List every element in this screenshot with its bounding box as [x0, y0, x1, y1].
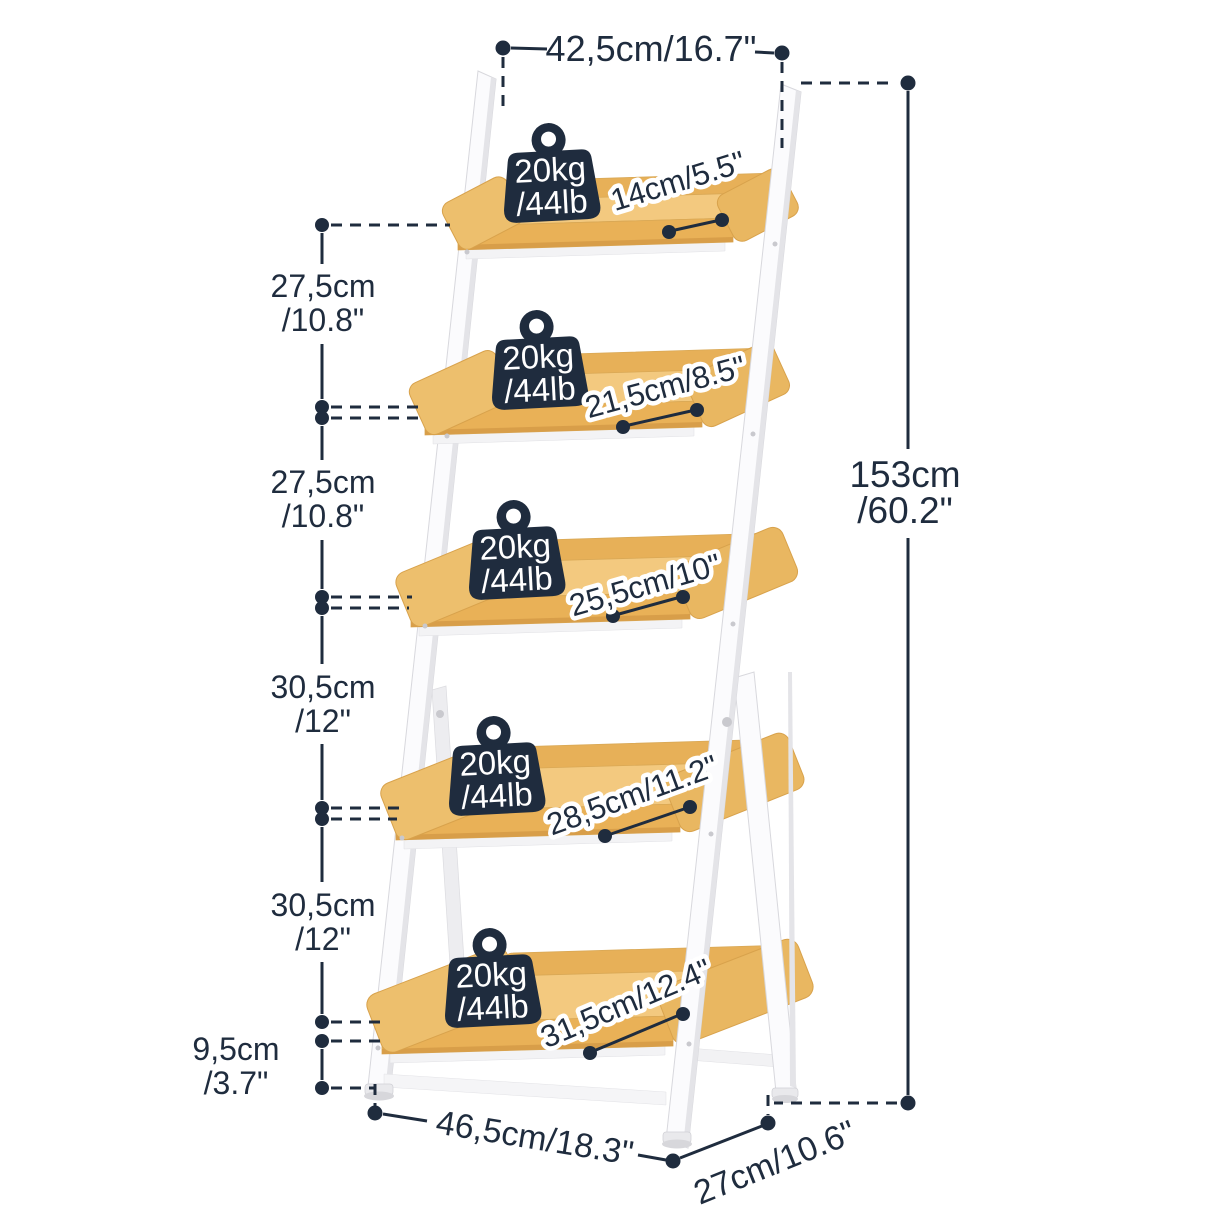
badge-lb-label: /44lb — [503, 369, 576, 410]
gap-4-cm-label: 30,5cm — [271, 887, 376, 923]
dim-base-depth: 27cm/10.6" — [680, 1095, 861, 1212]
gap-2-cm-label: 27,5cm — [271, 464, 376, 500]
badge-lb-label: /44lb — [480, 559, 553, 600]
front-right-foot — [662, 1132, 692, 1149]
gap-5-in-label: /3.7" — [204, 1065, 269, 1101]
product-dimension-diagram: 20kg /44lb 20kg /44lb 20kg /44lb — [0, 0, 1214, 1214]
weight-badge-2: 20kg /44lb — [488, 308, 589, 411]
weight-badge-4: 20kg /44lb — [445, 714, 546, 817]
gap-4-in-label: /12" — [295, 921, 351, 957]
ladder-shelf-diagram: 20kg /44lb 20kg /44lb 20kg /44lb — [0, 0, 1214, 1214]
front-stretcher — [384, 1074, 666, 1105]
weight-badge-3: 20kg /44lb — [465, 498, 566, 601]
back-right-foot — [772, 1088, 798, 1103]
base-depth-label: 27cm/10.6" — [689, 1113, 862, 1212]
gap-1-cm-label: 27,5cm — [271, 268, 376, 304]
top-width-label: 42,5cm/16.7" — [546, 28, 757, 69]
weight-badge-1: 20kg /44lb — [500, 121, 601, 224]
dim-gap-5: 9,5cm /3.7" — [192, 1031, 386, 1101]
badge-lb-label: /44lb — [515, 182, 588, 223]
bottom-width-label: 46,5cm/18.3" — [433, 1103, 636, 1172]
gap-2-in-label: /10.8" — [282, 498, 365, 534]
gap-3-cm-label: 30,5cm — [271, 669, 376, 705]
total-height-cm-label: 153cm — [849, 454, 960, 495]
total-height-in-label: /60.2" — [857, 490, 952, 531]
front-left-foot — [364, 1084, 394, 1101]
gap-1-in-label: /10.8" — [282, 302, 365, 338]
gap-5-cm-label: 9,5cm — [192, 1031, 279, 1067]
back-right-leg — [734, 672, 796, 1092]
gap-3-in-label: /12" — [295, 703, 351, 739]
badge-lb-label: /44lb — [460, 775, 533, 816]
badge-lb-label: /44lb — [456, 987, 529, 1028]
